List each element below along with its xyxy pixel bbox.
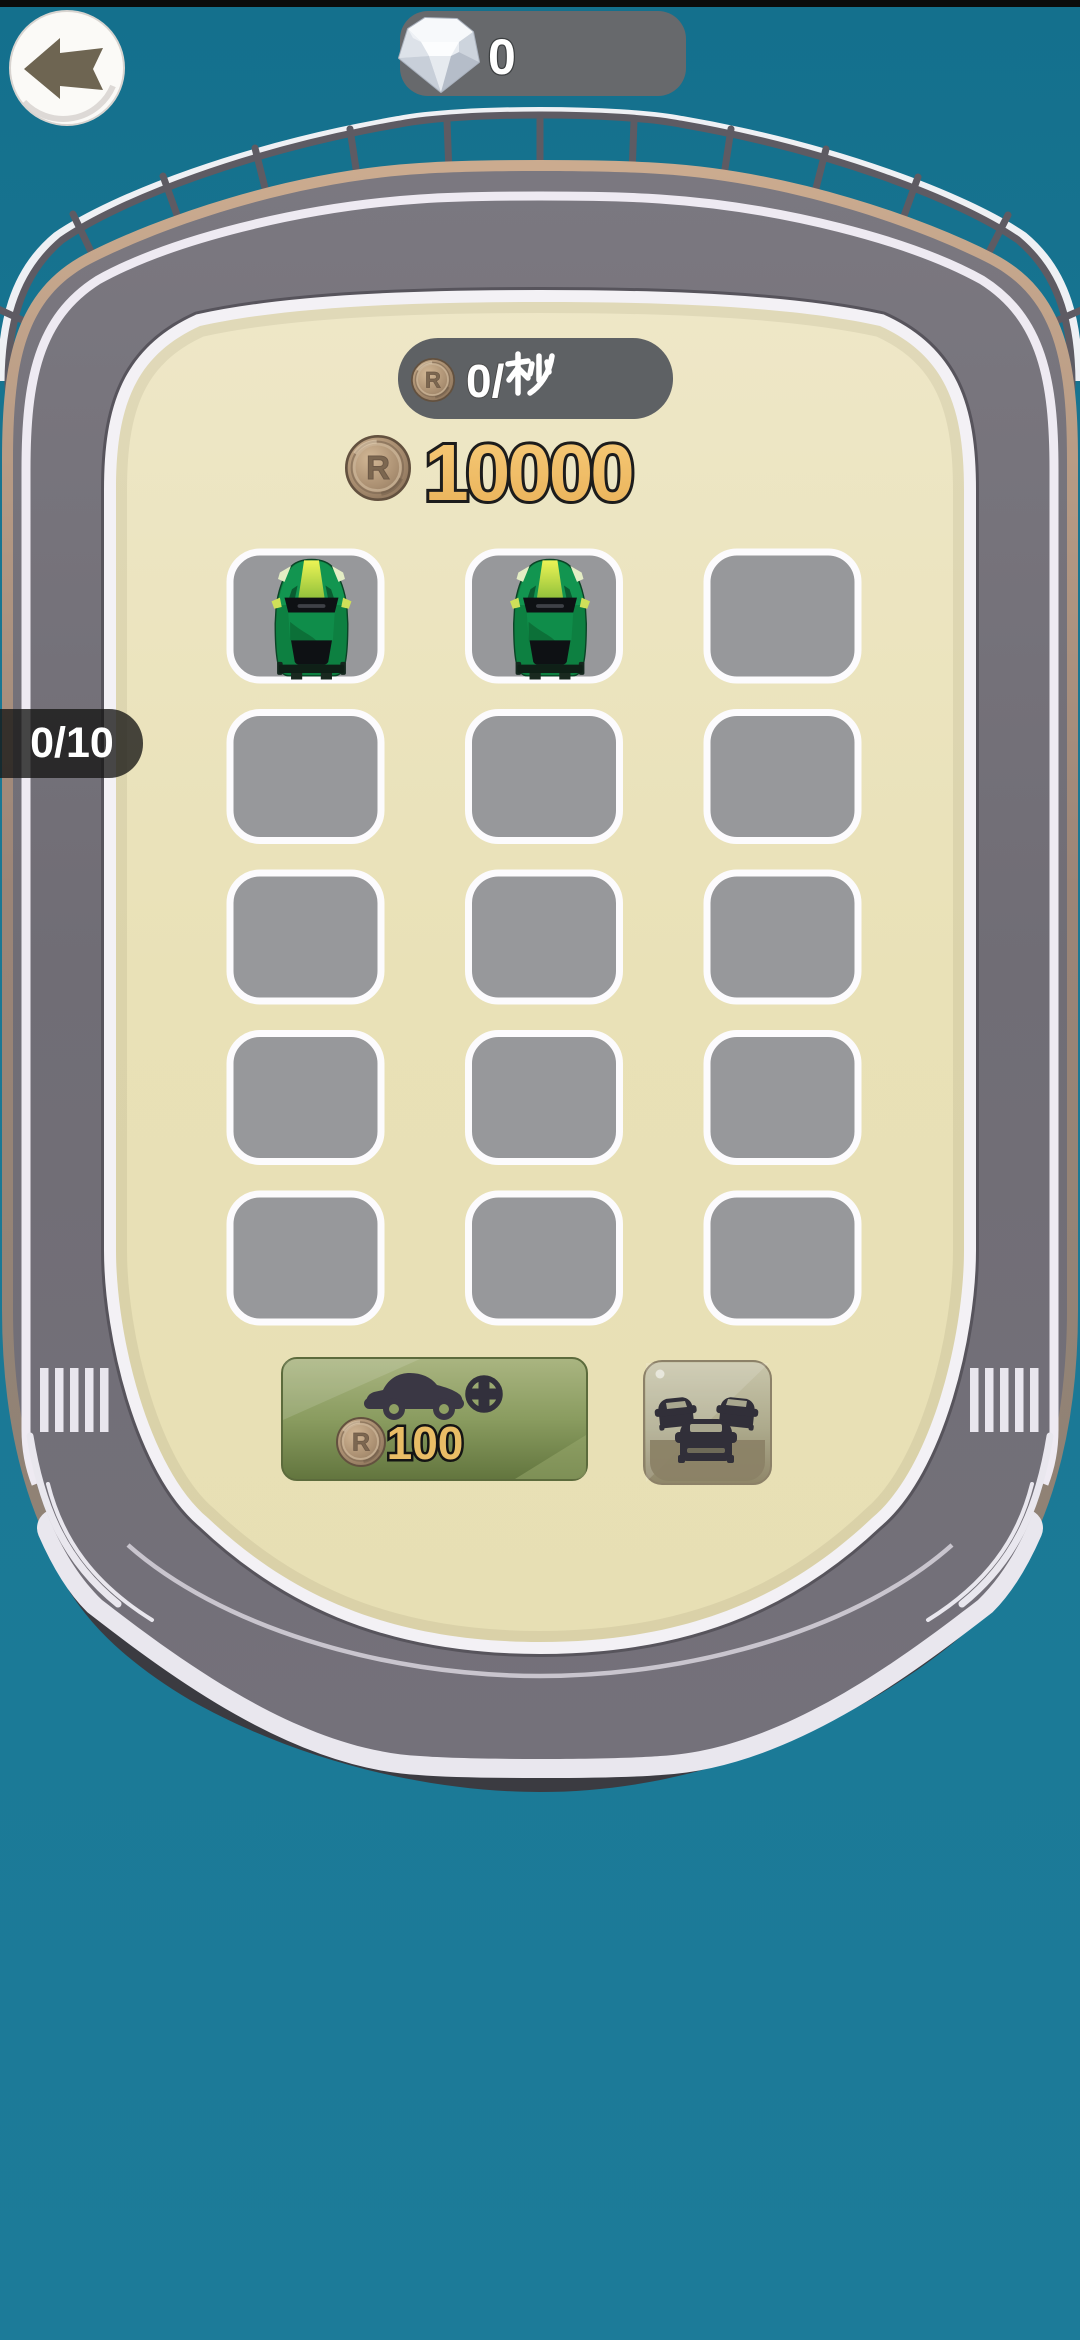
svg-text:10000: 10000 [424,428,632,517]
svg-text:100: 100 [387,1417,464,1469]
svg-text:0: 0 [488,29,516,85]
svg-text:0/10: 0/10 [30,719,114,767]
svg-text:0/: 0/ [466,355,505,407]
